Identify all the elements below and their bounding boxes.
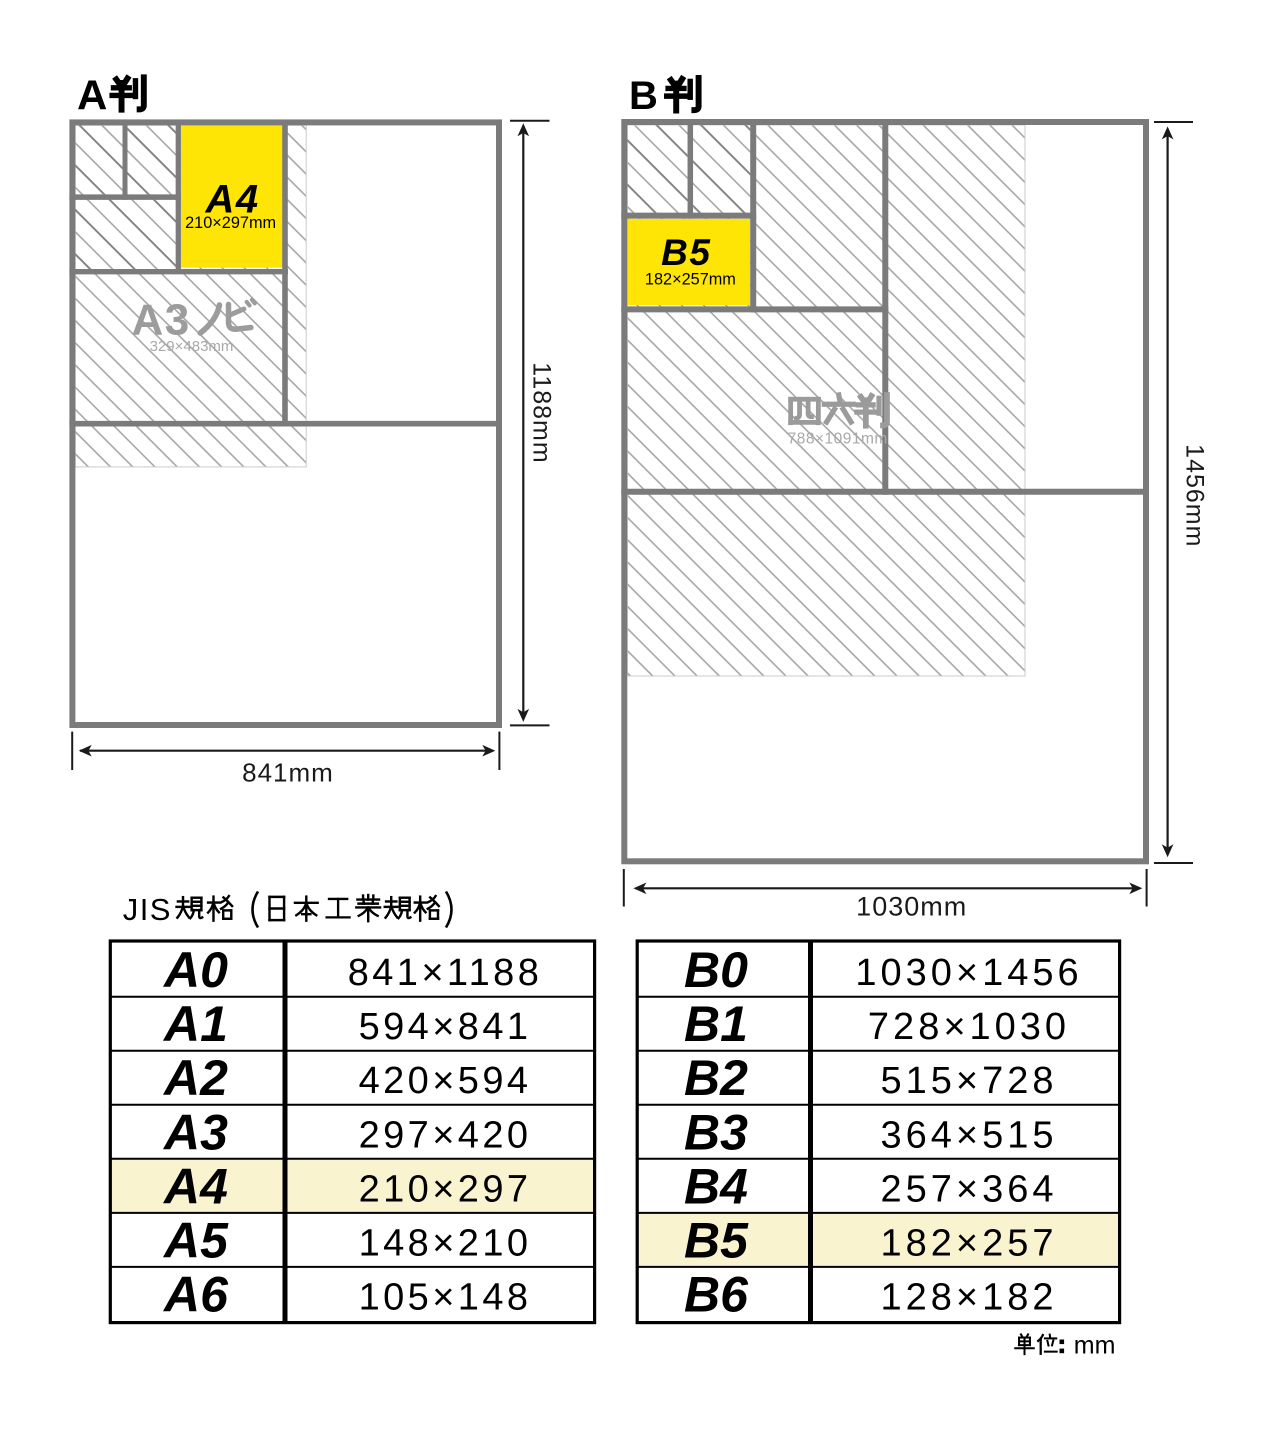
svg-text:841×1188: 841×1188 bbox=[348, 952, 543, 994]
svg-text:515×728: 515×728 bbox=[881, 1060, 1058, 1102]
svg-text:788×1091mm: 788×1091mm bbox=[788, 431, 888, 448]
svg-text:mm: mm bbox=[1074, 1332, 1116, 1360]
svg-text:1456mm: 1456mm bbox=[1181, 444, 1209, 547]
svg-text:B2: B2 bbox=[684, 1050, 748, 1106]
svg-text:A: A bbox=[77, 72, 107, 119]
svg-text:329×483mm: 329×483mm bbox=[150, 338, 234, 355]
svg-text:A5: A5 bbox=[162, 1212, 229, 1268]
svg-text:182×257: 182×257 bbox=[881, 1222, 1058, 1264]
svg-text:1030mm: 1030mm bbox=[856, 892, 967, 922]
svg-text:A2: A2 bbox=[162, 1050, 228, 1106]
svg-text:B0: B0 bbox=[684, 942, 748, 998]
svg-text:182×257mm: 182×257mm bbox=[645, 271, 736, 289]
svg-text:297×420: 297×420 bbox=[359, 1114, 532, 1156]
svg-text:420×594: 420×594 bbox=[359, 1060, 532, 1102]
svg-text:A1: A1 bbox=[162, 996, 228, 1052]
svg-text:128×182: 128×182 bbox=[881, 1277, 1058, 1319]
svg-text:594×841: 594×841 bbox=[359, 1006, 532, 1048]
svg-text:1030×1456: 1030×1456 bbox=[855, 952, 1082, 994]
svg-text:B3: B3 bbox=[684, 1104, 748, 1160]
svg-text:728×1030: 728×1030 bbox=[868, 1006, 1070, 1048]
svg-text:B5: B5 bbox=[661, 232, 711, 273]
svg-text:257×364: 257×364 bbox=[881, 1168, 1058, 1210]
svg-text:364×515: 364×515 bbox=[881, 1114, 1058, 1156]
svg-text:B1: B1 bbox=[684, 996, 748, 1052]
svg-text:105×148: 105×148 bbox=[359, 1277, 532, 1319]
svg-text:148×210: 148×210 bbox=[359, 1222, 532, 1264]
svg-text:A3: A3 bbox=[162, 1104, 228, 1160]
svg-text:A0: A0 bbox=[162, 942, 228, 998]
svg-text:A6: A6 bbox=[162, 1267, 229, 1323]
svg-text:B: B bbox=[629, 74, 658, 118]
svg-text:841mm: 841mm bbox=[242, 758, 334, 788]
svg-text:210×297: 210×297 bbox=[359, 1168, 532, 1210]
svg-text:B5: B5 bbox=[684, 1212, 749, 1268]
svg-text:210×297mm: 210×297mm bbox=[185, 214, 276, 232]
svg-text:B4: B4 bbox=[684, 1158, 748, 1214]
svg-text:B6: B6 bbox=[684, 1267, 749, 1323]
svg-text:1188mm: 1188mm bbox=[528, 362, 556, 463]
svg-text:JIS: JIS bbox=[123, 892, 172, 927]
svg-text:A4: A4 bbox=[162, 1158, 228, 1214]
